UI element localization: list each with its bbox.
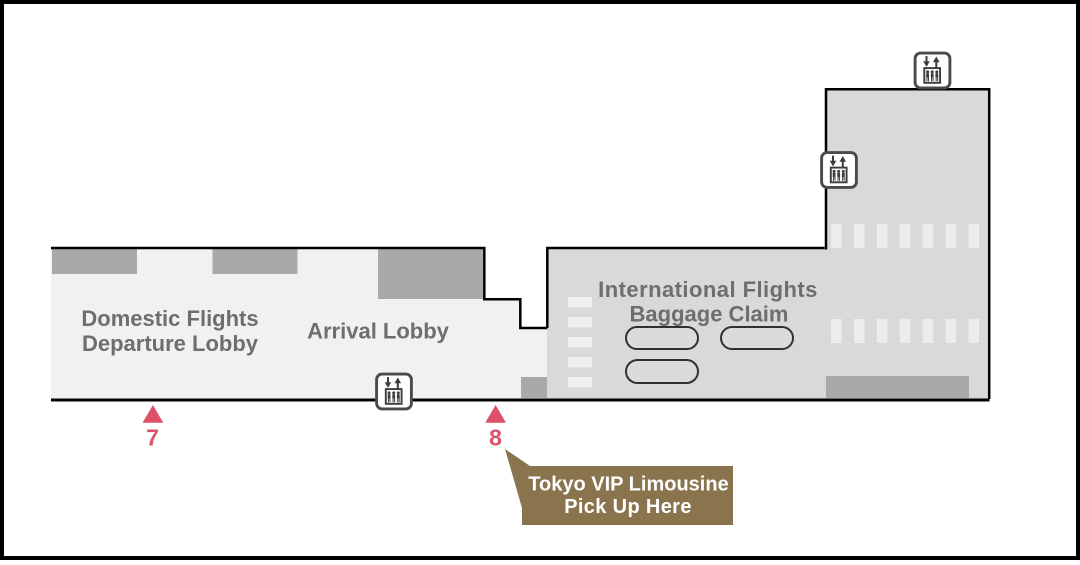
svg-text:Arrival Lobby: Arrival Lobby — [307, 319, 450, 344]
svg-text:International Flights: International Flights — [598, 277, 818, 302]
svg-text:7: 7 — [146, 425, 159, 451]
svg-text:Domestic Flights: Domestic Flights — [81, 306, 258, 331]
svg-text:Baggage Claim: Baggage Claim — [630, 302, 789, 327]
svg-text:Tokyo VIP Limousine: Tokyo VIP Limousine — [528, 474, 728, 496]
svg-text:Pick Up Here: Pick Up Here — [564, 496, 692, 518]
svg-text:8: 8 — [489, 425, 502, 451]
svg-text:Departure Lobby: Departure Lobby — [82, 331, 259, 356]
